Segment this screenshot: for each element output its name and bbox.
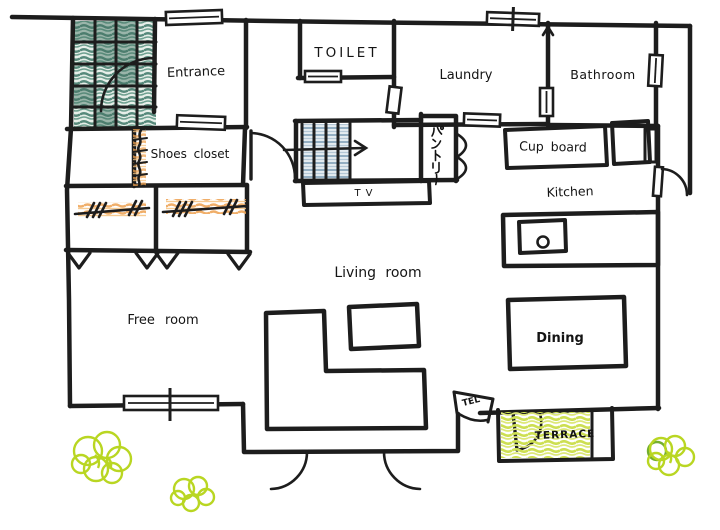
label-dining: Dining — [536, 331, 584, 346]
closet-hanger-rod — [75, 201, 149, 217]
label-shoes-closet: Shoes closet — [151, 147, 230, 161]
laundry-wall-arrow-icon — [543, 27, 553, 46]
label-toilet: TOILET — [313, 45, 379, 61]
pantry-bifold-door — [457, 134, 466, 179]
pantry-label-icon — [432, 127, 443, 185]
kitchen-island — [503, 212, 658, 266]
label-terrace: TERRACE — [535, 428, 596, 442]
floor-plan: パントリー — [0, 0, 720, 530]
label-free-room: Free room — [127, 313, 198, 328]
bush — [171, 477, 214, 511]
floor-plan-drawing: Entrance TOILET Laundry Bathroom Shoes c… — [0, 0, 720, 530]
kitchen-sink — [519, 220, 566, 253]
window — [305, 71, 341, 82]
hall-door — [251, 131, 295, 179]
label-bathroom: Bathroom — [570, 67, 635, 82]
closet-folding-door-marks — [68, 253, 250, 269]
coffee-table — [349, 304, 419, 349]
window — [648, 55, 663, 87]
sink-drain-icon — [538, 237, 549, 248]
label-living-room: Living room — [334, 265, 421, 281]
sofa — [266, 311, 426, 429]
label-tel: TEL — [461, 395, 481, 409]
window — [124, 388, 218, 421]
label-entrance: Entrance — [167, 64, 226, 81]
window — [166, 10, 222, 25]
window — [177, 115, 225, 130]
bush — [648, 436, 694, 475]
label-laundry: Laundry — [440, 68, 493, 83]
bush — [72, 432, 131, 483]
laundry-door — [386, 86, 401, 113]
window — [540, 88, 553, 116]
kitchen-back-door — [653, 167, 687, 196]
window — [487, 6, 540, 32]
label-tv: TV — [354, 188, 378, 199]
living-room-garden-doors — [271, 452, 420, 489]
label-kitchen: Kitchen — [546, 183, 593, 200]
shoes-closet-shelf — [133, 129, 147, 186]
closet-hanger-rod — [163, 199, 247, 216]
label-cupboard: Cup board — [519, 138, 587, 154]
window — [464, 113, 500, 126]
